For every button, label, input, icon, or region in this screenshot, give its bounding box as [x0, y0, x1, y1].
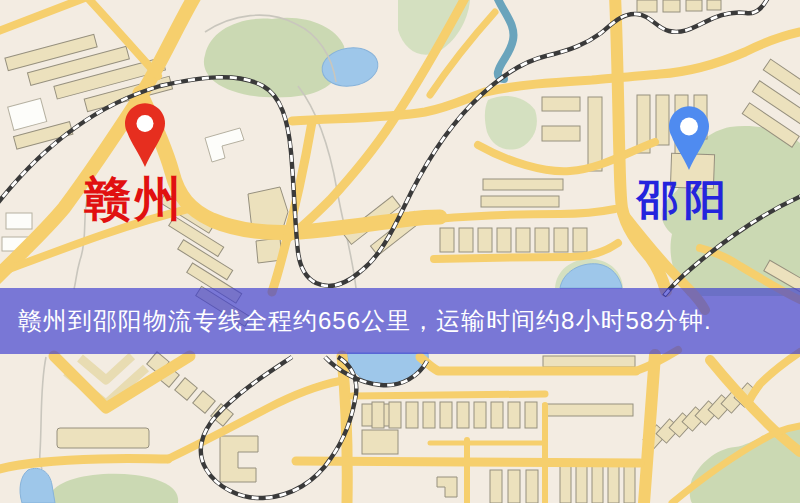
map-screenshot: 赣州 邵阳 赣州到邵阳物流专线全程约656公里，运输时间约8小时58分钟. [0, 0, 800, 503]
map-canvas [0, 0, 800, 503]
route-info-text: 赣州到邵阳物流专线全程约656公里，运输时间约8小时58分钟. [0, 305, 712, 337]
route-info-banner: 赣州到邵阳物流专线全程约656公里，运输时间约8小时58分钟. [0, 288, 800, 354]
destination-city-label: 邵阳 [637, 179, 731, 221]
origin-city-label: 赣州 [84, 175, 184, 222]
destination-pin-icon[interactable] [667, 106, 711, 170]
origin-pin-icon[interactable] [125, 103, 165, 167]
